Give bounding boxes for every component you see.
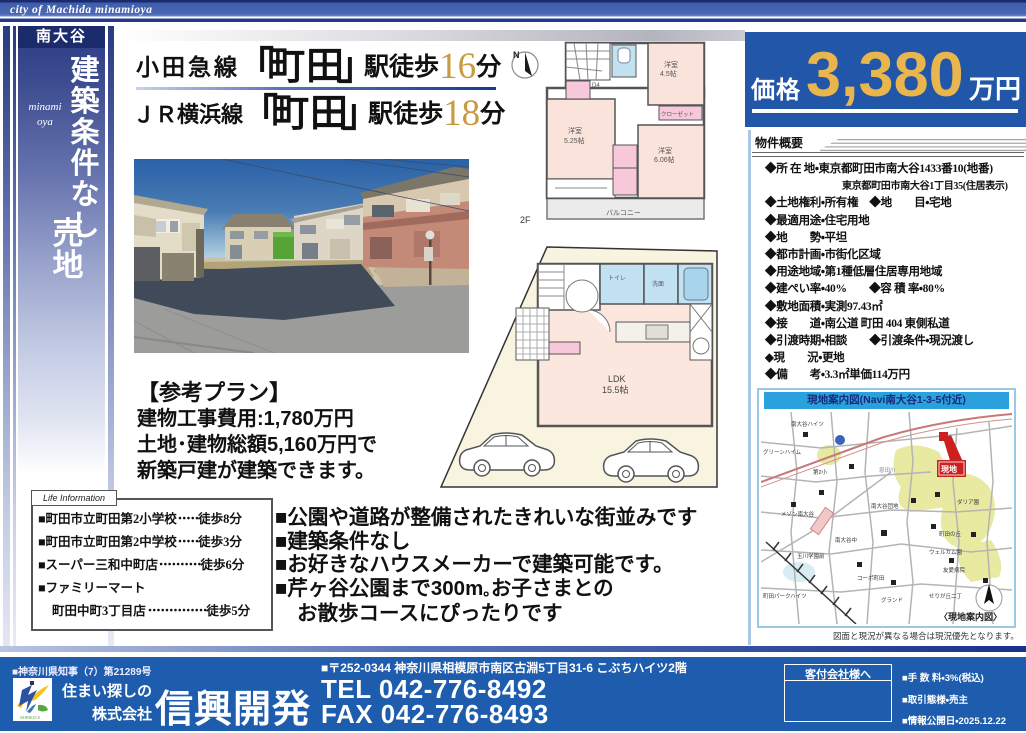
svg-text:SHINKO-K: SHINKO-K	[20, 715, 40, 720]
svg-text:コーポ町田: コーポ町田	[857, 575, 885, 582]
svg-text:15.5帖: 15.5帖	[602, 384, 629, 395]
svg-text:5.25帖: 5.25帖	[564, 136, 585, 145]
svg-text:南大谷中: 南大谷中	[835, 536, 857, 544]
svg-text:トイレ: トイレ	[608, 276, 626, 282]
svg-text:クローゼット: クローゼット	[661, 110, 694, 118]
svg-text:グリーンハイム: グリーンハイム	[763, 448, 802, 456]
svg-text:N: N	[513, 50, 520, 60]
svg-text:〈現地案内図〉: 〈現地案内図〉	[939, 611, 1002, 622]
svg-text:D4: D4	[592, 83, 600, 89]
svg-text:玉川学園前: 玉川学園前	[797, 552, 825, 560]
svg-text:6.06帖: 6.06帖	[654, 155, 675, 164]
svg-text:友愛病院: 友愛病院	[943, 566, 966, 574]
svg-text:洋室: 洋室	[664, 60, 678, 69]
svg-text:メゾン南大谷: メゾン南大谷	[781, 510, 815, 518]
svg-text:南大谷団地: 南大谷団地	[871, 502, 899, 510]
svg-text:4.5帖: 4.5帖	[660, 69, 677, 78]
svg-text:バルコニー: バルコニー	[606, 209, 641, 217]
svg-text:町田パークハイツ: 町田パークハイツ	[763, 593, 807, 600]
svg-text:洗面: 洗面	[652, 280, 664, 288]
svg-text:2F: 2F	[520, 215, 531, 225]
svg-text:LDK: LDK	[608, 374, 626, 384]
svg-text:グランド: グランド	[881, 596, 903, 604]
svg-text:せりが丘二丁: せりが丘二丁	[929, 592, 963, 600]
svg-text:町田の丘: 町田の丘	[939, 530, 962, 538]
svg-text:第2小: 第2小	[813, 468, 828, 476]
svg-text:南大谷ハイツ: 南大谷ハイツ	[791, 420, 824, 428]
svg-text:ダリア園: ダリア園	[957, 498, 980, 506]
svg-text:現地: 現地	[941, 464, 957, 474]
svg-text:ウェルカム園: ウェルカム園	[929, 548, 962, 556]
svg-text:恩田川: 恩田川	[879, 467, 896, 474]
svg-text:洋室: 洋室	[568, 126, 582, 135]
svg-text:洋室: 洋室	[658, 146, 672, 155]
